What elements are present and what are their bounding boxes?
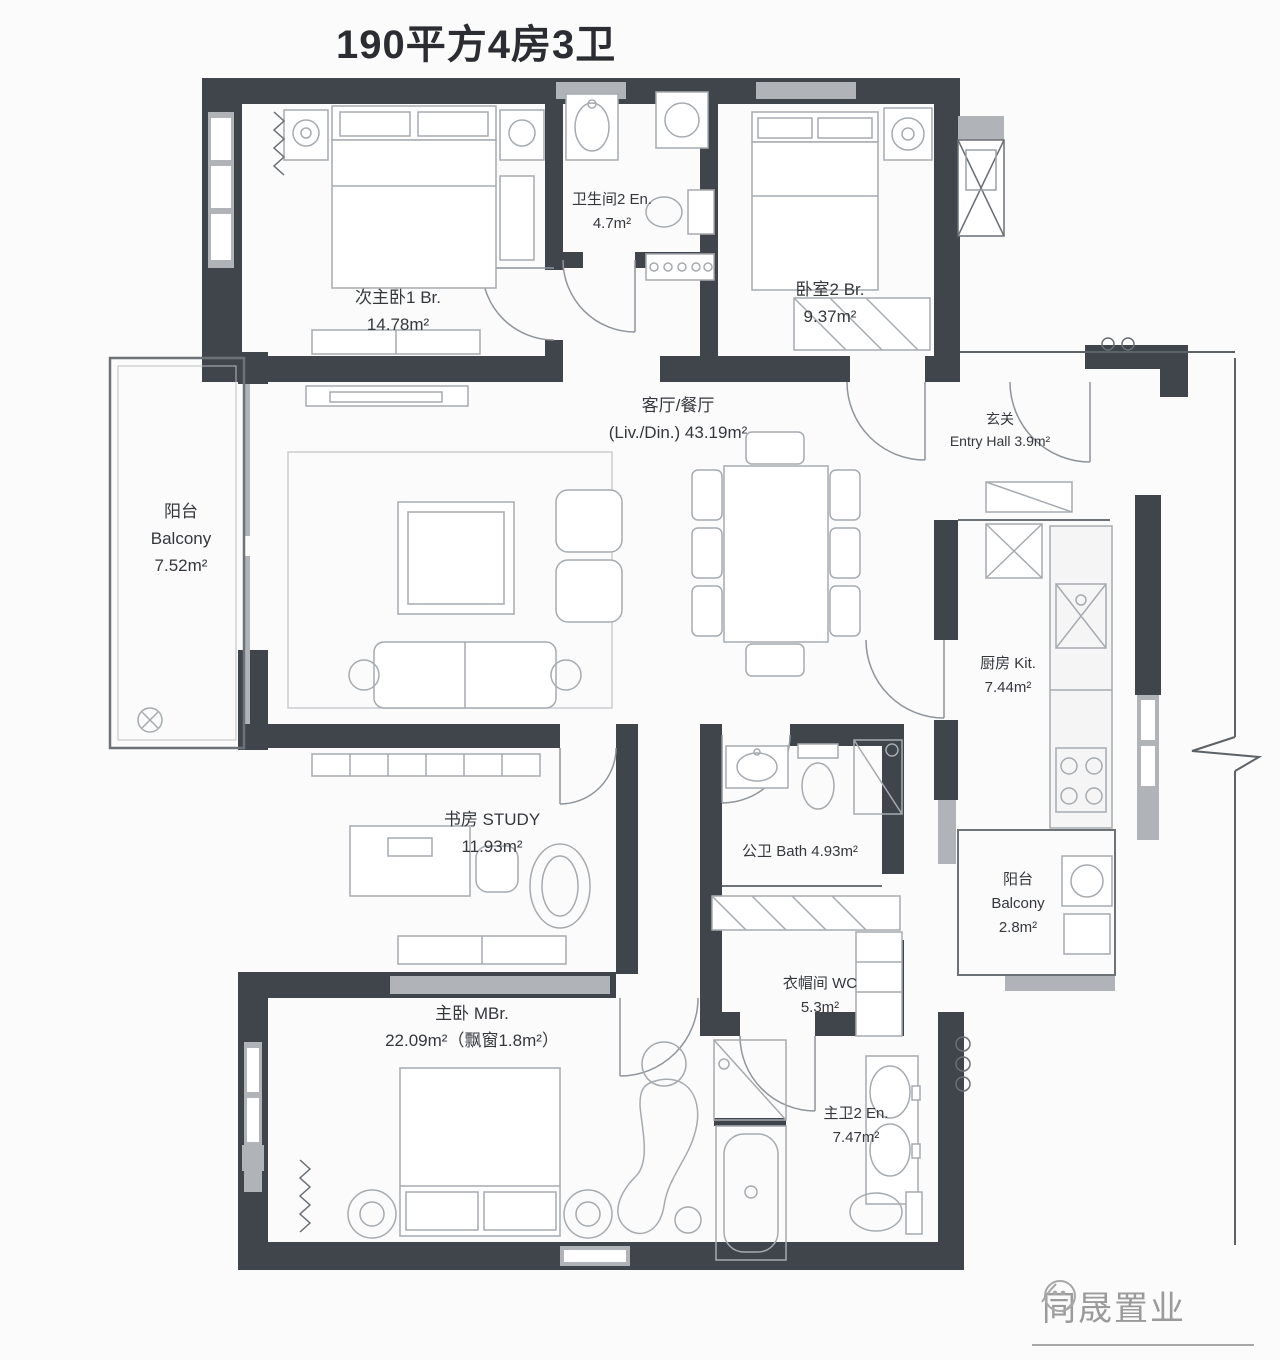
room-label-balcony-left: 阳台 Balcony 7.52m² bbox=[151, 498, 211, 580]
room-label-cloakroom: 衣帽间 WC 5.3m² bbox=[783, 972, 857, 1020]
room-name: 玄关 bbox=[950, 408, 1050, 430]
room-name: 阳台 bbox=[151, 498, 211, 525]
room-name: 次主卧1 Br. bbox=[355, 284, 441, 311]
room-name: 主卧 MBr. bbox=[385, 1000, 559, 1027]
room-area: 9.37m² bbox=[796, 303, 865, 330]
room-area: 7.47m² bbox=[823, 1126, 888, 1150]
room-area: (Liv./Din.) 43.19m² bbox=[609, 419, 748, 446]
room-area: 4.7m² bbox=[572, 212, 652, 236]
room-label-bath-public: 公卫 Bath 4.93m² bbox=[742, 840, 858, 864]
room-name: 厨房 Kit. bbox=[980, 652, 1036, 676]
room-label-entry: 玄关 Entry Hall 3.9m² bbox=[950, 408, 1050, 453]
room-area: 22.09m²（飘窗1.8m²） bbox=[385, 1027, 559, 1054]
room-name: 客厅/餐厅 bbox=[609, 392, 748, 419]
room-area: 5.3m² bbox=[783, 996, 857, 1020]
break-symbol bbox=[1192, 737, 1259, 771]
room-label-master: 主卧 MBr. 22.09m²（飘窗1.8m²） bbox=[385, 1000, 559, 1054]
room-label-bath-master: 主卫2 En. 7.47m² bbox=[823, 1102, 888, 1150]
room-area: 11.93m² bbox=[444, 833, 540, 860]
room-area: 7.44m² bbox=[980, 676, 1036, 700]
room-name: 公卫 Bath 4.93m² bbox=[742, 840, 858, 864]
room-name: 书房 STUDY bbox=[444, 806, 540, 833]
room-label-bedroom2: 卧室2 Br. 9.37m² bbox=[796, 276, 865, 330]
shaft-hatch bbox=[958, 140, 1004, 236]
floor-plan: 190平方4房3卫 次主卧1 Br. 14.78m² 卫生间2 En. 4.7m… bbox=[0, 0, 1280, 1360]
room-area: 2.8m² bbox=[991, 916, 1044, 940]
room-area: Entry Hall 3.9m² bbox=[950, 430, 1050, 452]
developer-logo: 同晟置业 bbox=[1032, 1272, 1254, 1346]
furniture-layer bbox=[138, 92, 1112, 1260]
room-label-living: 客厅/餐厅 (Liv./Din.) 43.19m² bbox=[609, 392, 748, 446]
room-area: 7.52m² bbox=[151, 552, 211, 579]
room-label-bedroom1: 次主卧1 Br. 14.78m² bbox=[355, 284, 441, 338]
room-name-en: Balcony bbox=[151, 525, 211, 552]
room-name: 阳台 bbox=[991, 868, 1044, 892]
room-label-balcony-right: 阳台 Balcony 2.8m² bbox=[991, 868, 1044, 940]
room-name: 衣帽间 WC bbox=[783, 972, 857, 996]
plan-title: 190平方4房3卫 bbox=[336, 12, 616, 70]
room-label-bath2: 卫生间2 En. 4.7m² bbox=[572, 188, 652, 236]
room-area: 14.78m² bbox=[355, 311, 441, 338]
room-label-study: 书房 STUDY 11.93m² bbox=[444, 806, 540, 860]
room-name: 卫生间2 En. bbox=[572, 188, 652, 212]
room-name: 卧室2 Br. bbox=[796, 276, 865, 303]
room-name: 主卫2 En. bbox=[823, 1102, 888, 1126]
room-label-kitchen: 厨房 Kit. 7.44m² bbox=[980, 652, 1036, 700]
room-name-en: Balcony bbox=[991, 892, 1044, 916]
